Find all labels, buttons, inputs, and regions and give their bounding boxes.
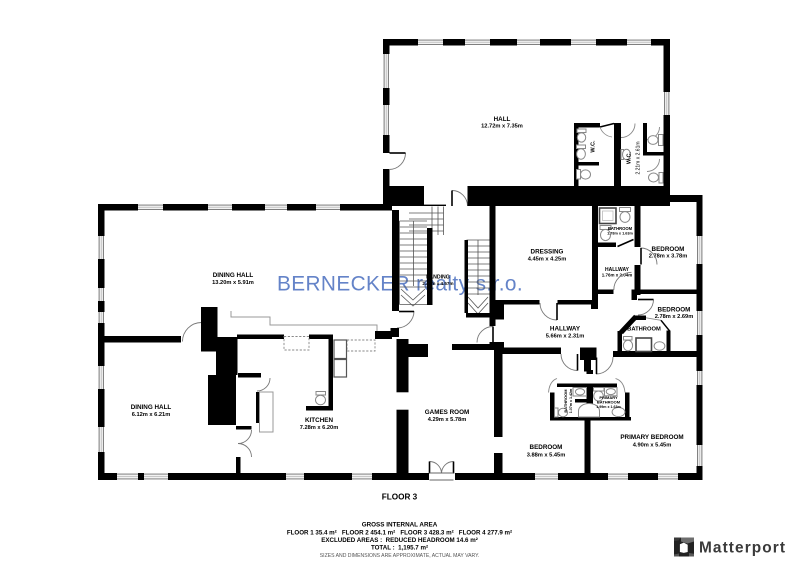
svg-text:EXCLUDED AREAS : REDUCED HEAD: EXCLUDED AREAS : REDUCED HEADROOM 14.6 m… bbox=[321, 537, 478, 544]
svg-text:DRESSING: DRESSING bbox=[531, 249, 564, 256]
svg-text:SIZES AND DIMENSIONS ARE APPRO: SIZES AND DIMENSIONS ARE APPROXIMATE, AC… bbox=[320, 553, 479, 559]
svg-text:FLOOR 3: FLOOR 3 bbox=[382, 493, 418, 502]
svg-text:1.07m x 1.42m: 1.07m x 1.42m bbox=[569, 389, 573, 413]
svg-text:2.21m x 2.61m: 2.21m x 2.61m bbox=[636, 141, 642, 174]
svg-text:DINING HALL: DINING HALL bbox=[213, 272, 254, 279]
svg-text:DINING HALL: DINING HALL bbox=[131, 404, 172, 411]
svg-text:PRIMARY BEDROOM: PRIMARY BEDROOM bbox=[620, 434, 683, 441]
svg-text:2.78m x 3.78m: 2.78m x 3.78m bbox=[649, 254, 688, 260]
svg-text:GAMES ROOM: GAMES ROOM bbox=[425, 409, 469, 416]
svg-text:HALLWAY: HALLWAY bbox=[550, 326, 581, 333]
svg-text:W.C.: W.C. bbox=[627, 151, 633, 164]
svg-text:1.78m x 1.63m: 1.78m x 1.63m bbox=[607, 231, 633, 235]
svg-text:5.66m x 2.31m: 5.66m x 2.31m bbox=[546, 333, 585, 339]
svg-text:BEDROOM: BEDROOM bbox=[658, 307, 691, 314]
svg-text:4.90m x 5.45m: 4.90m x 5.45m bbox=[633, 442, 672, 448]
svg-text:LANDING: LANDING bbox=[426, 275, 450, 281]
svg-text:12.72m x 7.35m: 12.72m x 7.35m bbox=[481, 124, 523, 130]
svg-text:7.28m x 6.20m: 7.28m x 6.20m bbox=[300, 425, 339, 431]
svg-text:6.12m x 6.21m: 6.12m x 6.21m bbox=[132, 412, 171, 418]
svg-text:13.20m x 5.91m: 13.20m x 5.91m bbox=[212, 280, 254, 286]
svg-text:2.78m x 2.69m: 2.78m x 2.69m bbox=[655, 314, 694, 320]
svg-text:Matterport: Matterport bbox=[699, 540, 786, 557]
svg-text:FLOOR 1 35.4 m² FLOOR 2 454.: FLOOR 1 35.4 m² FLOOR 2 454.1 m² FLOOR 3… bbox=[287, 530, 512, 537]
svg-text:1.99m x 1.63m: 1.99m x 1.63m bbox=[596, 405, 620, 409]
svg-text:4.45m x 4.25m: 4.45m x 4.25m bbox=[528, 256, 567, 262]
svg-text:BEDROOM: BEDROOM bbox=[652, 246, 685, 253]
svg-text:HALL: HALL bbox=[494, 116, 511, 123]
svg-text:4.29m x 5.78m: 4.29m x 5.78m bbox=[428, 417, 467, 423]
svg-text:BATHROOM: BATHROOM bbox=[563, 389, 568, 413]
svg-text:BEDROOM: BEDROOM bbox=[530, 444, 563, 451]
svg-text:3.88m x 5.45m: 3.88m x 5.45m bbox=[527, 453, 566, 459]
svg-text:GROSS INTERNAL AREA: GROSS INTERNAL AREA bbox=[362, 522, 438, 529]
svg-text:KITCHEN: KITCHEN bbox=[305, 417, 333, 424]
svg-text:BATHROOM: BATHROOM bbox=[597, 400, 621, 405]
svg-text:TOTAL : 1,195.7 m²: TOTAL : 1,195.7 m² bbox=[371, 544, 428, 551]
svg-text:BATHROOM: BATHROOM bbox=[627, 327, 661, 333]
svg-text:BATHROOM: BATHROOM bbox=[608, 226, 633, 231]
svg-text:W.C.: W.C. bbox=[591, 140, 597, 153]
svg-text:2.41m x 4.57m: 2.41m x 4.57m bbox=[422, 281, 453, 286]
